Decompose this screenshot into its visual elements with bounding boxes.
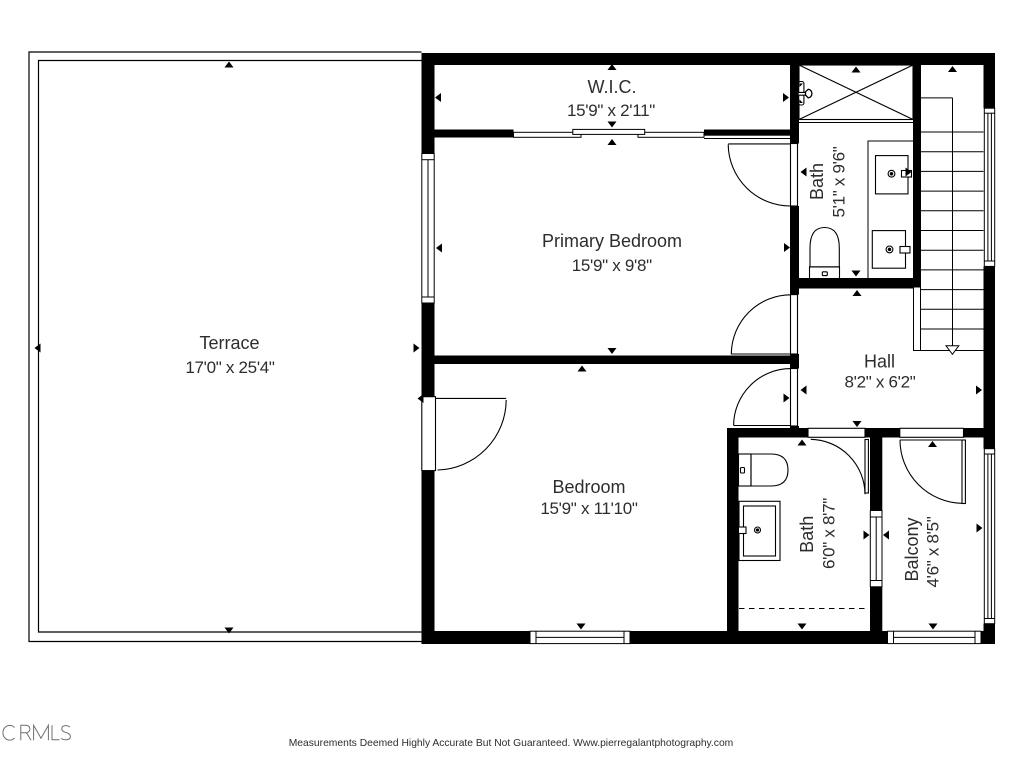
- svg-text:15'9" x 2'11": 15'9" x 2'11": [567, 101, 655, 120]
- svg-text:Bath: Bath: [797, 516, 817, 553]
- svg-text:6'0" x 8'7": 6'0" x 8'7": [820, 498, 839, 569]
- svg-text:Bedroom: Bedroom: [552, 477, 625, 497]
- svg-text:8'2" x 6'2": 8'2" x 6'2": [844, 373, 915, 392]
- svg-text:Primary Bedroom: Primary Bedroom: [542, 231, 682, 251]
- svg-text:15'9" x 11'10": 15'9" x 11'10": [540, 499, 637, 518]
- svg-text:Terrace: Terrace: [199, 333, 259, 353]
- svg-text:4'6" x 8'5": 4'6" x 8'5": [924, 516, 943, 587]
- svg-text:Hall: Hall: [864, 352, 895, 372]
- svg-text:17'0" x 25'4": 17'0" x 25'4": [185, 358, 275, 377]
- svg-text:Balcony: Balcony: [902, 517, 922, 581]
- svg-text:W.I.C.: W.I.C.: [588, 77, 637, 97]
- svg-text:15'9" x 9'8": 15'9" x 9'8": [572, 256, 652, 275]
- svg-text:Bath: Bath: [807, 163, 827, 200]
- svg-text:5'1" x 9'6": 5'1" x 9'6": [829, 146, 848, 217]
- svg-text:Measurements Deemed Highly Acc: Measurements Deemed Highly Accurate But …: [289, 738, 734, 749]
